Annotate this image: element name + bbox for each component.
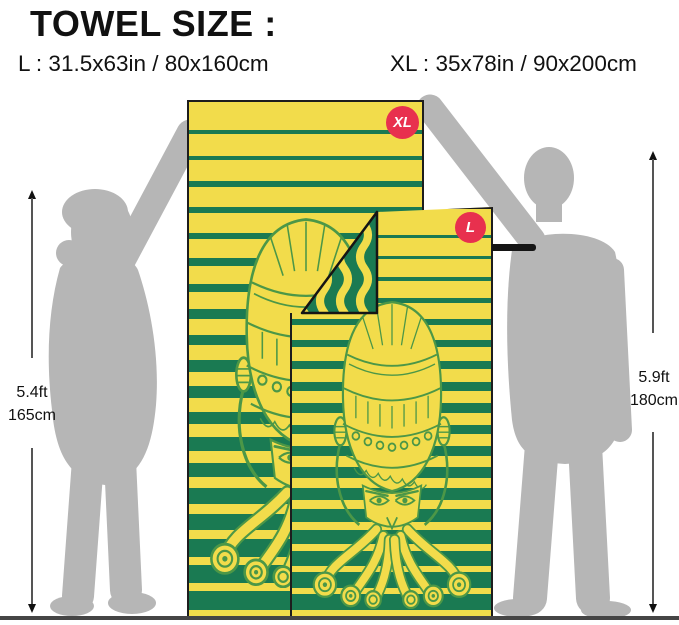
towel-stripe bbox=[189, 130, 422, 134]
left-measure-line-bottom bbox=[31, 448, 33, 606]
towel-stripe bbox=[189, 181, 422, 186]
right-height-label: 5.9ft 180cm bbox=[620, 366, 679, 412]
left-arrow-down-icon bbox=[28, 604, 36, 613]
woman-silhouette bbox=[49, 133, 190, 616]
left-height-cm: 165cm bbox=[0, 404, 65, 427]
right-height-ft: 5.9ft bbox=[620, 366, 679, 389]
l-size-badge: L bbox=[455, 212, 486, 243]
towel-stripe bbox=[189, 156, 422, 160]
size-xl-spec: XL : 35x78in / 90x200cm bbox=[390, 51, 637, 77]
right-measure-line-top bbox=[652, 159, 654, 333]
l-badge-label: L bbox=[466, 219, 475, 236]
right-height-cm: 180cm bbox=[620, 389, 679, 412]
left-height-ft: 5.4ft bbox=[0, 381, 65, 404]
left-height-label: 5.4ft 165cm bbox=[0, 381, 65, 427]
right-measure-line-bottom bbox=[652, 432, 654, 604]
xl-badge-label: XL bbox=[393, 115, 412, 131]
page-title: TOWEL SIZE : bbox=[30, 3, 277, 45]
left-measure-line-top bbox=[31, 198, 33, 358]
xl-size-badge: XL bbox=[386, 106, 419, 139]
towel-size-infographic: XL L 5.4ft 165cm 5.9ft 180cm TOWEL SIZE … bbox=[0, 0, 679, 625]
size-l-spec: L : 31.5x63in / 80x160cm bbox=[18, 51, 269, 77]
folded-corner-wave-pattern bbox=[294, 208, 380, 316]
right-arrow-down-icon bbox=[649, 604, 657, 613]
ground-line bbox=[0, 616, 679, 620]
octopus-mandala-l bbox=[306, 291, 478, 609]
towel-hanging-strap bbox=[492, 244, 536, 251]
